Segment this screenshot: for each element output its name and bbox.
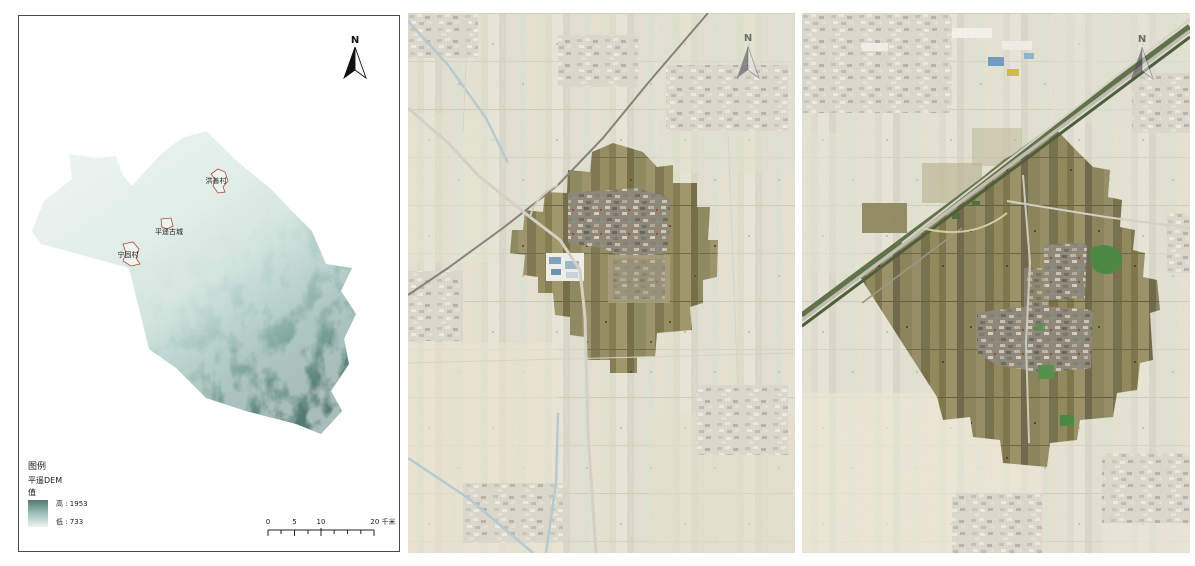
village-label-southwest: 宁固村 xyxy=(118,250,139,259)
satellite-map-right-panel: N xyxy=(802,13,1190,553)
grain-overlay xyxy=(802,13,1190,553)
north-arrow-icon: N xyxy=(344,35,366,78)
county-dem-shape xyxy=(29,106,394,476)
legend-title: 图例 xyxy=(28,463,88,472)
legend-high-value: 高 : 1953 xyxy=(56,501,88,508)
scale-label-5: 5 xyxy=(292,518,296,526)
legend: 图例 平遥DEM 值 高 : 1953 低 : 733 xyxy=(28,463,88,527)
scale-bar: 0 5 10 20 千米 xyxy=(266,517,396,536)
satellite-map-mid-panel: N xyxy=(408,13,795,553)
satellite-map-right: N xyxy=(802,13,1190,553)
satellite-map-mid: N xyxy=(408,13,795,553)
scale-label-10: 10 xyxy=(317,518,326,526)
legend-low-value: 低 : 733 xyxy=(56,519,88,526)
figure-canvas: 洪善村 平遥古城 宁固村 N xyxy=(0,0,1195,566)
dem-map-panel: 洪善村 平遥古城 宁固村 N xyxy=(18,15,400,552)
scale-label-0: 0 xyxy=(266,518,270,526)
legend-field-name: 值 xyxy=(28,489,88,497)
north-letter: N xyxy=(1138,34,1146,45)
legend-layer-name: 平遥DEM xyxy=(28,477,88,485)
north-letter: N xyxy=(351,35,359,46)
relief-texture xyxy=(29,106,394,476)
grain-overlay xyxy=(408,13,795,553)
scale-label-20km: 20 千米 xyxy=(370,517,395,526)
village-label-north: 洪善村 xyxy=(206,176,227,185)
legend-color-ramp xyxy=(28,500,48,527)
ancient-city-label: 平遥古城 xyxy=(155,227,183,236)
north-letter: N xyxy=(744,33,752,44)
